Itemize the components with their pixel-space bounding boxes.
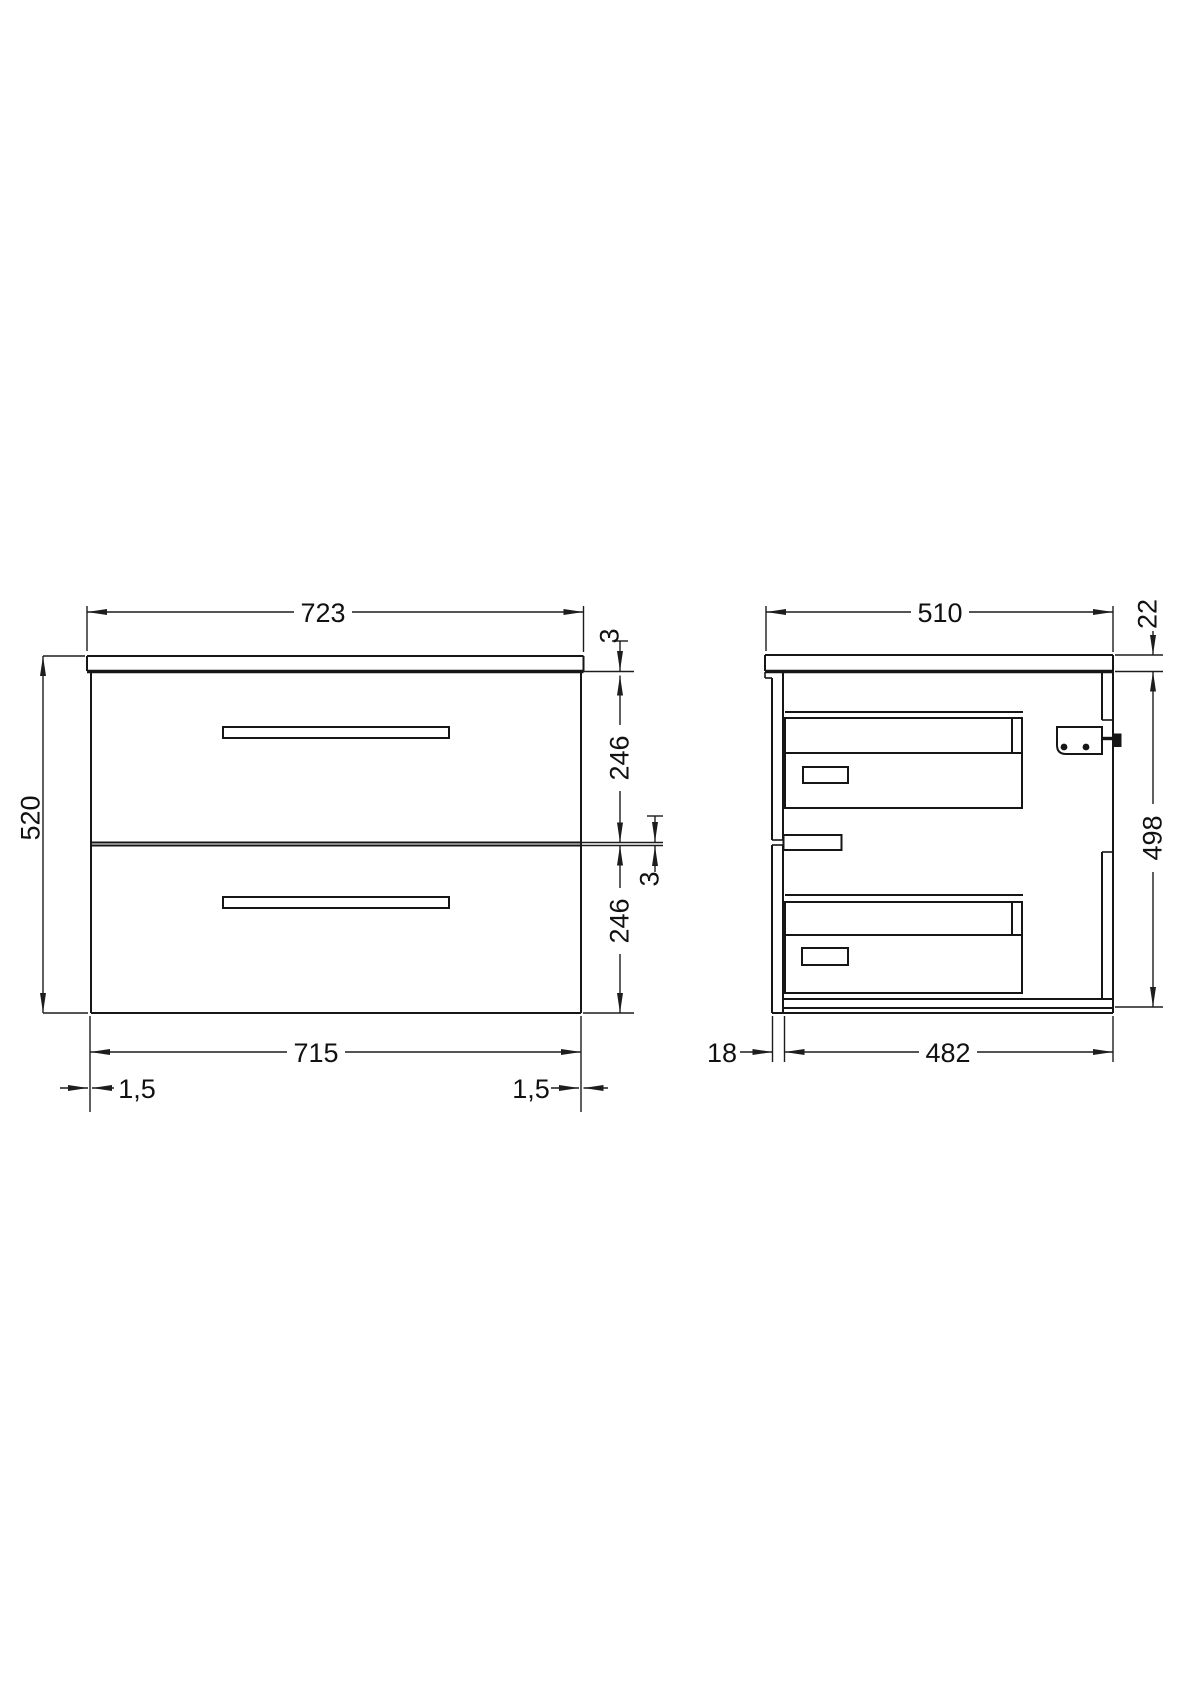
- dim-front-side-gap-right: 1,5: [512, 1074, 608, 1104]
- dim-label-side-overall-depth: 510: [917, 598, 962, 628]
- side-view: [765, 655, 1122, 1013]
- dim-label-front-bottom-drawer-height: 246: [605, 898, 635, 943]
- side-top-drawer-box: [785, 712, 1023, 808]
- dim-label-front-mid-gap: 3: [635, 871, 665, 886]
- dim-label-side-cabinet-height: 498: [1138, 815, 1168, 860]
- dim-side-cabinet-height: 498: [1115, 672, 1168, 1008]
- wall-bracket: [1057, 727, 1122, 754]
- front-cabinet-body: [91, 672, 581, 1013]
- front-view-dimensions: 723 520 3 246: [16, 597, 665, 1112]
- front-view: [87, 656, 584, 1013]
- dim-front-top-gap: 3: [583, 628, 634, 671]
- side-bottom-drawer-box: [785, 895, 1023, 993]
- dim-front-overall-height: 520: [16, 656, 89, 1013]
- side-drawer-fronts: [772, 673, 783, 1013]
- side-view-dimensions: 510 22 498 18: [707, 597, 1168, 1068]
- dim-label-side-cabinet-depth: 482: [925, 1038, 970, 1068]
- dim-label-side-worktop-thickness: 22: [1133, 599, 1163, 629]
- bracket-wall-hook: [1113, 734, 1122, 748]
- dim-label-side-front-thickness: 18: [707, 1038, 737, 1068]
- dim-side-bottom: 18 482: [707, 1016, 1113, 1068]
- dim-front-top-drawer-height: 246: [581, 676, 663, 843]
- dim-label-front-overall-height: 520: [16, 795, 46, 840]
- vanity-technical-drawing: 723 520 3 246: [0, 0, 1200, 1698]
- dim-side-worktop-thickness: 22: [1115, 599, 1163, 672]
- dim-label-front-top-gap: 3: [595, 628, 625, 643]
- dim-front-mid-gap: 3: [581, 816, 665, 887]
- dim-label-front-side-gap-left: 1,5: [118, 1074, 156, 1104]
- dim-label-front-fronts-width: 715: [293, 1038, 338, 1068]
- dim-front-bottom-drawer-height: 246: [583, 846, 635, 1014]
- front-worktop: [87, 656, 584, 672]
- dim-label-front-side-gap-right: 1,5: [512, 1074, 550, 1104]
- bracket-screw-dot: [1061, 744, 1068, 751]
- dim-front-fronts-width: 715: [90, 1016, 581, 1112]
- side-runner-tab: [784, 835, 842, 850]
- technical-drawing-page: 723 520 3 246: [0, 0, 1200, 1698]
- dim-front-overall-width: 723: [87, 597, 584, 652]
- top-drawer-handle: [223, 727, 449, 738]
- dim-label-front-overall-width: 723: [300, 598, 345, 628]
- dim-side-overall-depth: 510: [766, 597, 1113, 652]
- bottom-drawer-handle: [223, 897, 449, 908]
- dim-label-front-top-drawer-height: 246: [605, 735, 635, 780]
- side-worktop: [765, 655, 1113, 678]
- bracket-screw-dot: [1083, 744, 1090, 751]
- dim-front-side-gap-left: 1,5: [60, 1074, 156, 1104]
